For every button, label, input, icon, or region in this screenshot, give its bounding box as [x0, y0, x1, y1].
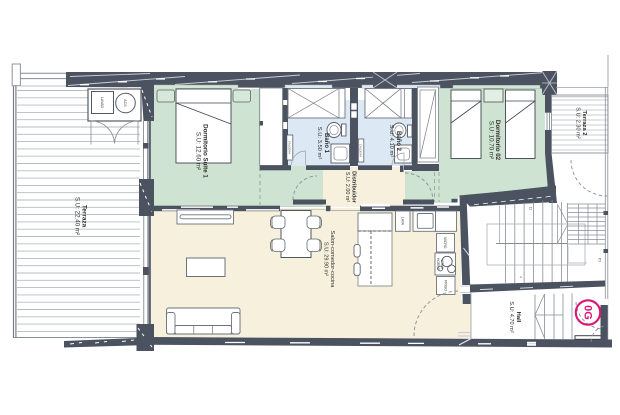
svg-text:4: 4	[519, 276, 523, 278]
svg-text:LAVAD: LAVAD	[100, 97, 104, 109]
svg-text:S.U: 10.70 m²: S.U: 10.70 m²	[488, 121, 495, 159]
svg-text:S.U: 29.90 m²: S.U: 29.90 m²	[323, 242, 329, 276]
svg-text:S.U: 12.60 m²: S.U: 12.60 m²	[195, 132, 202, 170]
svg-text:12: 12	[529, 207, 533, 211]
svg-text:Baño 2: Baño 2	[395, 131, 401, 152]
svg-text:Terraza 2: Terraza 2	[581, 110, 587, 135]
svg-text:Baño 1: Baño 1	[323, 133, 329, 154]
svg-text:Terraza: Terraza	[81, 205, 88, 228]
svg-text:S.U: 2.30 m²: S.U: 2.30 m²	[575, 107, 581, 139]
svg-text:S.U: 4.10 m²: S.U: 4.10 m²	[388, 125, 394, 158]
svg-text:0G: 0G	[582, 305, 594, 320]
svg-text:Salon-comedor-cocina: Salon-comedor-cocina	[329, 231, 335, 289]
svg-text:FRIGO: FRIGO	[443, 280, 447, 291]
svg-text:S.U: 4.70 m²: S.U: 4.70 m²	[508, 301, 514, 333]
svg-text:S.U: 2.00 m²: S.U: 2.00 m²	[344, 172, 350, 202]
svg-text:MICRO: MICRO	[443, 237, 447, 249]
svg-text:Distribuidor: Distribuidor	[351, 171, 357, 204]
svg-text:ACS: ACS	[123, 99, 127, 107]
svg-text:LAVA: LAVA	[400, 217, 404, 226]
svg-text:CALDERA: CALDERA	[287, 141, 291, 154]
svg-text:S.U: 22.40 m²: S.U: 22.40 m²	[74, 197, 81, 235]
svg-text:Dormitorio Suite 1: Dormitorio Suite 1	[202, 124, 209, 178]
svg-text:S.U: 3.50 m²: S.U: 3.50 m²	[316, 127, 322, 160]
svg-text:Hall: Hall	[515, 312, 521, 323]
svg-text:P.9: P.9	[598, 258, 602, 263]
svg-text:CALDERA: CALDERA	[359, 144, 363, 157]
